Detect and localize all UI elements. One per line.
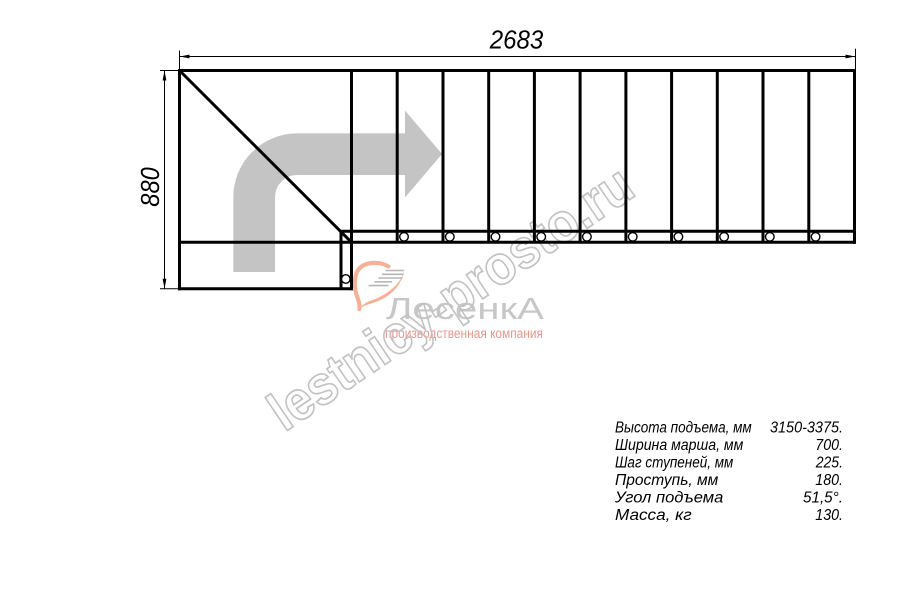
svg-text:3150-3375.: 3150-3375. xyxy=(770,419,843,436)
svg-text:225.: 225. xyxy=(815,454,843,471)
svg-text:Высота подъема, мм: Высота подъема, мм xyxy=(615,419,752,436)
svg-text:Шаг ступеней, мм: Шаг ступеней, мм xyxy=(615,454,734,471)
svg-text:880: 880 xyxy=(135,167,165,207)
svg-text:Масса, кг: Масса, кг xyxy=(615,507,692,524)
svg-text:51,5°.: 51,5°. xyxy=(803,489,843,506)
svg-text:Ширина марша, мм: Ширина марша, мм xyxy=(615,437,744,454)
svg-text:2683: 2683 xyxy=(489,25,544,55)
svg-text:700.: 700. xyxy=(815,437,843,454)
svg-text:Проступь, мм: Проступь, мм xyxy=(615,472,719,489)
svg-text:130.: 130. xyxy=(815,507,843,524)
svg-text:180.: 180. xyxy=(815,472,843,489)
svg-text:Угол подъема: Угол подъема xyxy=(614,489,724,506)
